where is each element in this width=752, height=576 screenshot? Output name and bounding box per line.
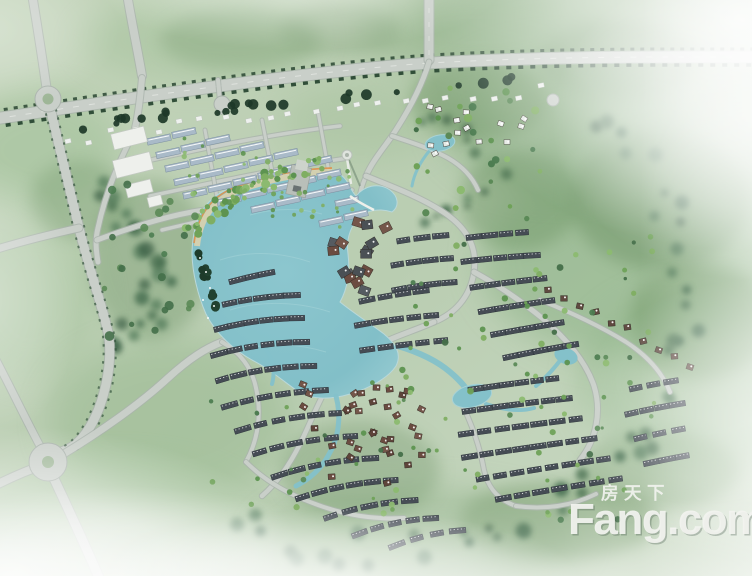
site-plan-canvas: Fang.com 房天下 Fang.com <box>0 0 752 576</box>
site-plan-rendering: Fang.com 房天下 Fang.com <box>0 0 752 576</box>
watermark-en: Fang.com <box>568 495 752 544</box>
